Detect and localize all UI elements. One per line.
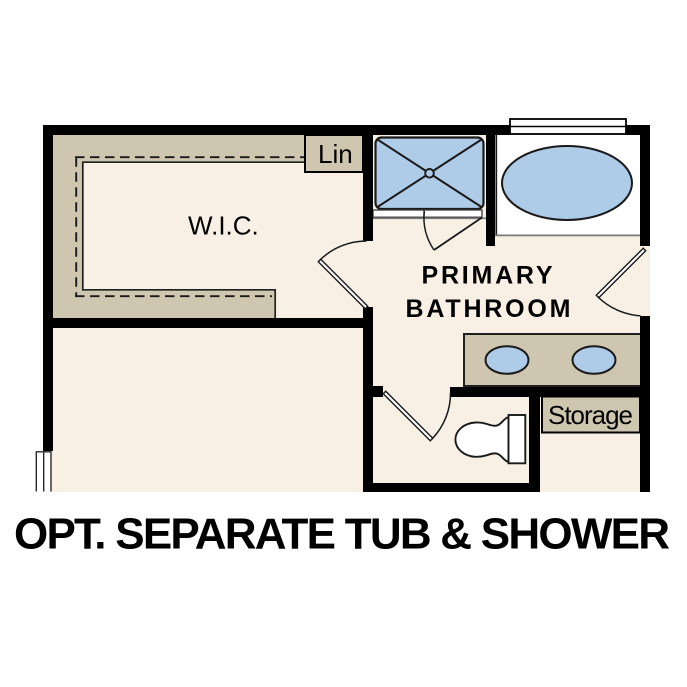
- svg-text:Storage: Storage: [548, 400, 633, 430]
- svg-text:OPT. SEPARATE TUB & SHOWER: OPT. SEPARATE TUB & SHOWER: [14, 510, 670, 559]
- svg-text:Lin: Lin: [318, 139, 353, 169]
- svg-text:W.I.C.: W.I.C.: [188, 211, 259, 241]
- svg-text:BATHROOM: BATHROOM: [406, 295, 571, 323]
